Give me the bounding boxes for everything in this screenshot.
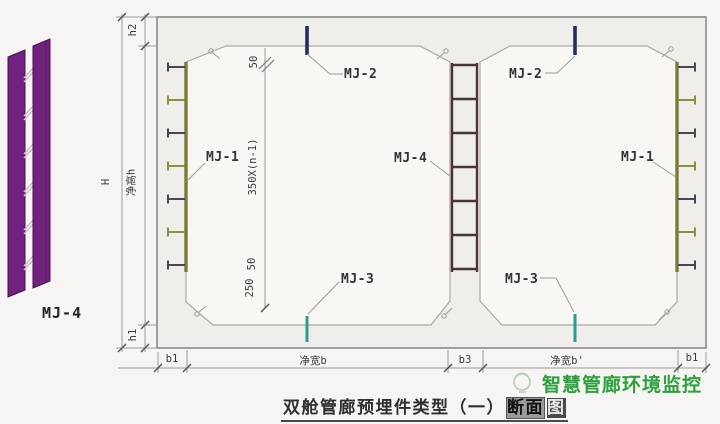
detail-mj4-label: MJ-4 <box>42 304 82 322</box>
dim-b1-left: b1 <box>152 353 192 365</box>
mj4-detail-3d <box>8 39 50 297</box>
dim-spacing-top: 50 <box>248 32 260 92</box>
title-text: 双舱管廊预埋件类型（一） <box>283 398 505 418</box>
callout-mj2-right: MJ-2 <box>509 67 542 82</box>
title-highlight-1: 断面 <box>507 398 544 418</box>
dim-spacing-mid: 350X(n-1) <box>247 129 259 205</box>
dim-total-height: H <box>100 152 112 212</box>
watermark: 智慧管廊环境监控 <box>508 370 702 397</box>
watermark-text: 智慧管廊环境监控 <box>542 370 702 397</box>
callout-mj3-left: MJ-3 <box>341 272 374 287</box>
dim-bottom-slab: h1 <box>127 305 139 365</box>
dim-top-slab: h2 <box>127 0 139 60</box>
tunnel-section-screenshot: MJ-1 MJ-2 MJ-4 MJ-2 MJ-3 MJ-3 MJ-1 H h2 … <box>0 0 720 424</box>
left-compartment <box>186 46 450 325</box>
callout-mj2-left: MJ-2 <box>344 67 377 82</box>
dim-clear-width-left: 净宽b <box>273 353 353 368</box>
callout-mj4: MJ-4 <box>394 151 427 166</box>
dim-b1-right: b1 <box>672 352 712 364</box>
callout-mj3-right: MJ-3 <box>505 272 538 287</box>
dim-spacing-bot: 250 <box>244 258 256 318</box>
callout-mj1-right: MJ-1 <box>621 150 654 165</box>
callout-mj1-left: MJ-1 <box>206 150 239 165</box>
dim-clear-width-right: 净宽b' <box>527 353 607 368</box>
dim-clear-height: 净高h <box>124 153 139 213</box>
title-highlight-2: 图 <box>547 398 566 418</box>
dim-b3: b3 <box>445 354 485 366</box>
tunnel-outline <box>157 17 706 348</box>
section-drawing <box>0 0 720 424</box>
drawing-title: 双舱管廊预埋件类型（一）断面图 <box>281 393 568 422</box>
